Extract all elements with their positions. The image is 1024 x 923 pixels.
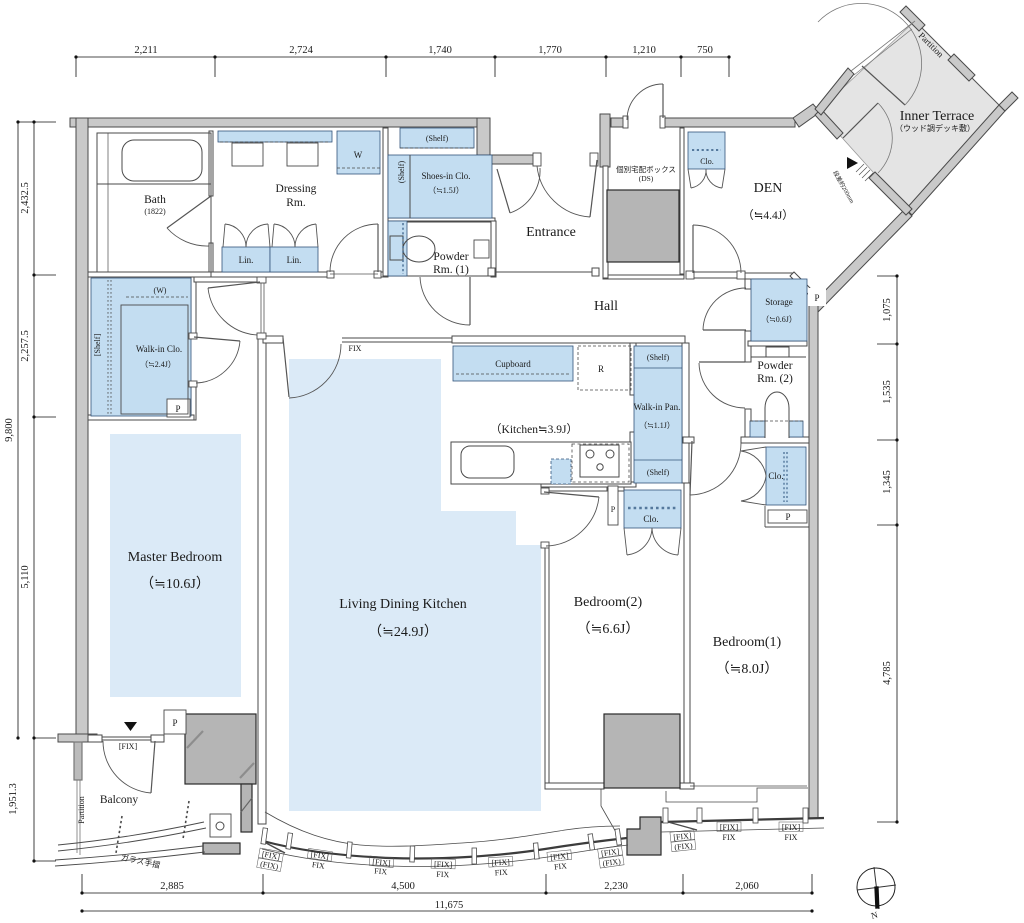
svg-text:[Shelf]: [Shelf] [93,334,102,357]
svg-text:個別宅配ボックス: 個別宅配ボックス [616,164,676,174]
svg-text:FIX: FIX [311,860,325,871]
svg-text:（≒2.4J）: （≒2.4J） [140,360,176,369]
svg-text:1,951.3: 1,951.3 [8,783,19,815]
svg-text:Inner Terrace: Inner Terrace [900,109,975,124]
svg-text:[FIX]: [FIX] [782,823,801,832]
svg-text:（≒1.5J）: （≒1.5J） [428,186,464,195]
svg-text:(DS): (DS) [639,174,654,183]
svg-text:P: P [611,505,616,514]
svg-text:2,230: 2,230 [604,881,628,892]
svg-text:(1822): (1822) [144,207,166,216]
svg-text:P: P [814,293,819,303]
svg-text:Clo.: Clo. [643,514,658,524]
svg-text:4,785: 4,785 [882,661,893,685]
svg-text:Bath: Bath [144,194,166,206]
svg-text:2,257.5: 2,257.5 [20,330,31,362]
svg-text:Clo.: Clo. [768,471,783,481]
svg-text:（≒24.9J）: （≒24.9J） [368,624,438,640]
svg-text:5,110: 5,110 [20,565,31,588]
svg-text:Master Bedroom: Master Bedroom [128,550,223,565]
svg-text:P: P [172,718,177,728]
svg-text:Lin.: Lin. [287,255,302,265]
svg-text:2,432.5: 2,432.5 [20,182,31,214]
svg-text:(W): (W) [154,286,167,295]
svg-text:R: R [598,364,604,374]
svg-text:2,211: 2,211 [134,45,157,56]
svg-text:（≒0.6J）: （≒0.6J） [761,315,797,324]
svg-text:Rm. (1): Rm. (1) [433,264,469,276]
svg-text:Rm.: Rm. [286,197,306,209]
svg-text:(Shelf): (Shelf) [397,161,406,184]
svg-text:Walk-in Clo.: Walk-in Clo. [136,344,182,354]
svg-text:1,535: 1,535 [882,380,893,404]
svg-text:（ウッド調デッキ敷）: （ウッド調デッキ敷） [895,123,975,133]
svg-text:FIX: FIX [349,344,362,353]
svg-text:P: P [175,404,180,414]
svg-text:（≒6.6J）: （≒6.6J） [577,621,640,637]
svg-text:1,740: 1,740 [428,45,452,56]
svg-text:FIX: FIX [436,870,449,879]
svg-text:FIX: FIX [785,833,798,842]
svg-text:Cupboard: Cupboard [495,359,531,369]
svg-text:(Shelf): (Shelf) [426,134,449,143]
svg-text:Bedroom(1): Bedroom(1) [713,635,782,650]
svg-text:[FIX]: [FIX] [119,742,138,751]
svg-text:Storage: Storage [765,297,793,307]
svg-text:（≒4.4J）: （≒4.4J） [742,209,794,222]
svg-text:1,770: 1,770 [538,45,562,56]
svg-text:（≒8.0J）: （≒8.0J） [716,661,779,677]
svg-text:1,345: 1,345 [882,470,893,494]
svg-text:Entrance: Entrance [526,225,576,240]
svg-text:1,075: 1,075 [882,298,893,322]
svg-text:[FIX]: [FIX] [434,860,453,870]
svg-text:Powder: Powder [757,360,792,372]
svg-text:[FIX]: [FIX] [491,858,510,868]
svg-text:FIX: FIX [495,868,509,878]
svg-text:Living Dining Kitchen: Living Dining Kitchen [339,597,467,612]
svg-text:1,210: 1,210 [632,45,656,56]
svg-text:Balcony: Balcony [100,794,139,806]
svg-text:（≒1.1J）: （≒1.1J） [639,421,675,430]
svg-text:（Kitchen≒3.9J）: （Kitchen≒3.9J） [490,423,578,436]
svg-text:Hall: Hall [594,299,618,314]
svg-text:Clo.: Clo. [700,157,714,166]
svg-text:(Shelf): (Shelf) [647,353,670,362]
svg-text:2,724: 2,724 [289,45,313,56]
svg-text:9,800: 9,800 [4,418,15,442]
svg-text:（≒10.6J）: （≒10.6J） [140,576,210,592]
svg-text:(Shelf): (Shelf) [647,468,670,477]
svg-text:2,885: 2,885 [160,881,184,892]
svg-text:FIX: FIX [374,866,388,876]
svg-text:FIX: FIX [554,861,568,871]
svg-text:750: 750 [697,45,713,56]
svg-text:[FIX]: [FIX] [720,823,739,832]
svg-text:Shoes-in Clo.: Shoes-in Clo. [421,171,470,181]
svg-text:Rm. (2): Rm. (2) [757,373,793,385]
svg-text:FIX: FIX [723,833,736,842]
svg-text:Partition: Partition [77,796,86,824]
svg-text:P: P [785,512,790,522]
svg-text:11,675: 11,675 [435,900,464,911]
svg-text:Walk-in Pan.: Walk-in Pan. [634,402,681,412]
svg-text:Dressing: Dressing [276,183,317,195]
svg-text:4,500: 4,500 [391,881,415,892]
svg-text:W: W [354,150,363,160]
svg-text:Lin.: Lin. [239,255,254,265]
svg-text:Powder: Powder [433,251,468,263]
svg-text:DEN: DEN [754,181,783,196]
svg-text:2,060: 2,060 [735,881,759,892]
svg-text:Bedroom(2): Bedroom(2) [574,595,643,610]
